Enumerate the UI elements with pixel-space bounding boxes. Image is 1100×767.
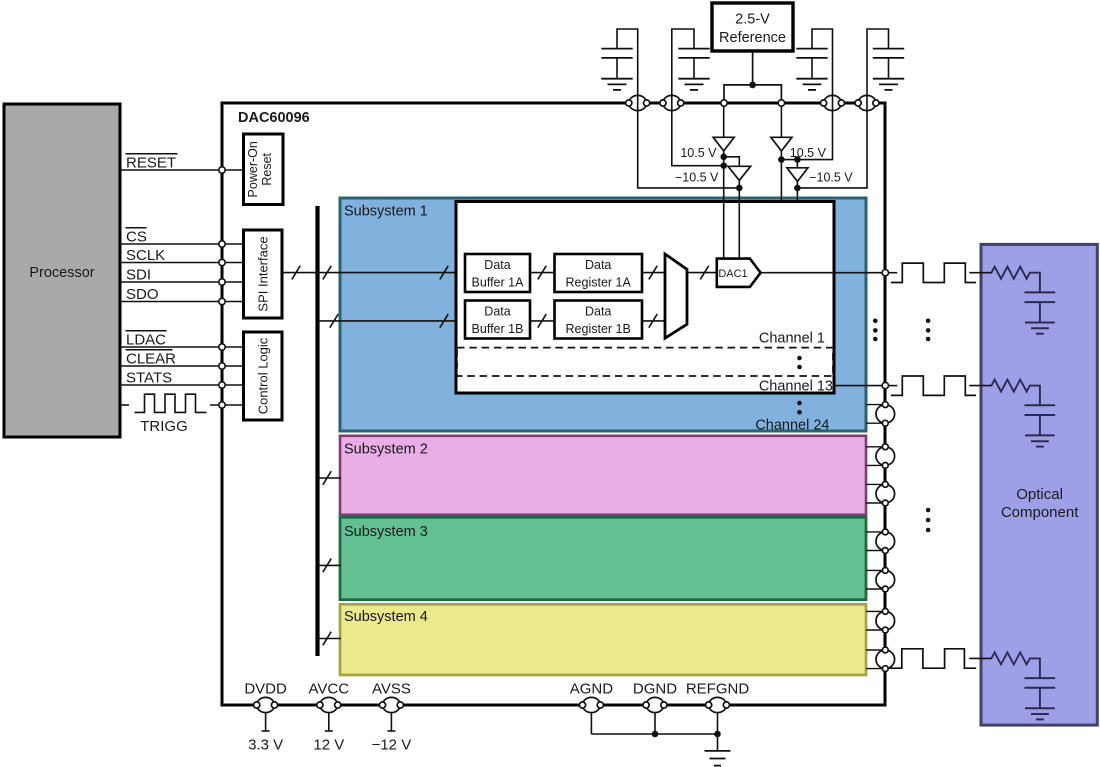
svg-text:10.5 V: 10.5 V [680, 146, 717, 160]
svg-text:SDI: SDI [126, 267, 151, 284]
svg-text:CS: CS [126, 229, 147, 246]
svg-text:Reset: Reset [260, 152, 274, 185]
svg-text:Buffer 1B: Buffer 1B [472, 322, 524, 336]
svg-text:Buffer 1A: Buffer 1A [472, 276, 525, 290]
svg-text:DAC60096: DAC60096 [238, 110, 310, 126]
svg-text:Subsystem 1: Subsystem 1 [344, 204, 428, 220]
svg-text:Control Logic: Control Logic [256, 337, 271, 414]
svg-text:Reference: Reference [719, 30, 786, 46]
svg-text:Subsystem 2: Subsystem 2 [344, 441, 428, 457]
svg-text:TRIGG: TRIGG [140, 418, 188, 435]
svg-text:CLEAR: CLEAR [126, 351, 176, 368]
svg-text:Data: Data [484, 258, 510, 272]
svg-text:Channel 24: Channel 24 [755, 417, 829, 433]
svg-text:Data: Data [585, 258, 611, 272]
svg-text:Component: Component [1001, 504, 1079, 521]
svg-text:3.3 V: 3.3 V [248, 737, 283, 754]
svg-text:DGND: DGND [633, 681, 677, 698]
svg-text:−10.5 V: −10.5 V [675, 171, 719, 185]
svg-text:SPI Interface: SPI Interface [256, 236, 271, 311]
svg-text:LDAC: LDAC [126, 332, 166, 349]
svg-text:SCLK: SCLK [126, 247, 165, 264]
svg-text:AVSS: AVSS [372, 681, 411, 698]
svg-text:RESET: RESET [126, 155, 176, 172]
svg-text:AGND: AGND [570, 681, 614, 698]
svg-text:REFGND: REFGND [686, 681, 750, 698]
svg-text:STATS: STATS [126, 370, 172, 387]
svg-text:Data: Data [484, 305, 510, 319]
svg-text:−12 V: −12 V [372, 737, 412, 754]
svg-text:Data: Data [585, 305, 611, 319]
svg-text:Channel 1: Channel 1 [759, 331, 825, 347]
svg-text:Subsystem 3: Subsystem 3 [344, 524, 428, 540]
svg-text:Processor: Processor [29, 265, 94, 281]
svg-text:12 V: 12 V [313, 737, 344, 754]
svg-text:Channel 13: Channel 13 [759, 379, 833, 395]
svg-text:AVCC: AVCC [309, 681, 350, 698]
svg-text:Register 1A: Register 1A [566, 276, 632, 290]
svg-text:DVDD: DVDD [244, 681, 287, 698]
svg-text:Optical: Optical [1016, 486, 1063, 503]
svg-text:SDO: SDO [126, 286, 159, 303]
svg-text:DAC1: DAC1 [718, 268, 747, 280]
svg-text:−10.5 V: −10.5 V [809, 171, 853, 185]
svg-text:Register 1B: Register 1B [566, 322, 631, 336]
svg-text:Subsystem 4: Subsystem 4 [344, 609, 428, 625]
svg-text:2.5-V: 2.5-V [735, 12, 770, 28]
svg-text:Power-On: Power-On [246, 141, 260, 197]
